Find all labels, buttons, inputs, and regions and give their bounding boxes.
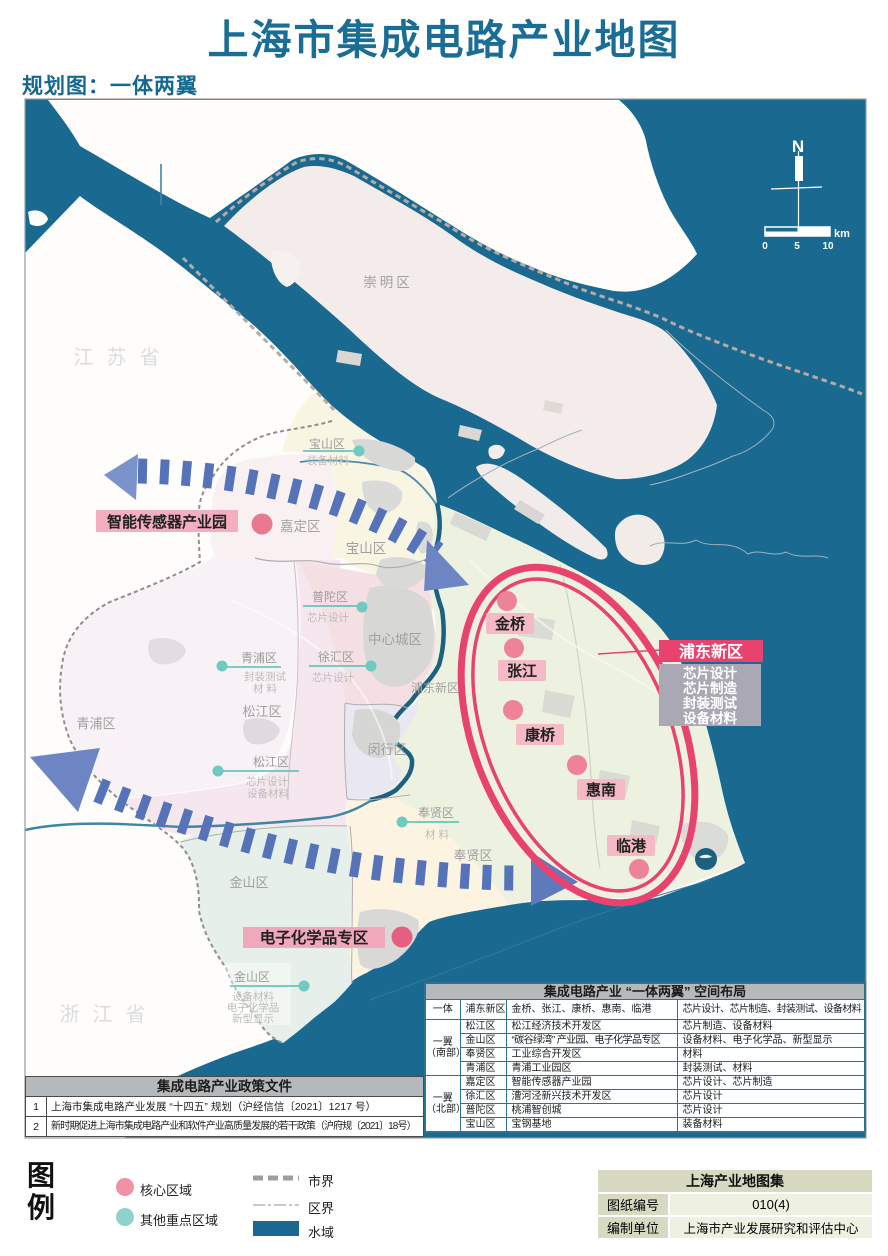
svg-text:奉贤区: 奉贤区 — [418, 806, 454, 820]
svg-text:青浦区: 青浦区 — [76, 716, 115, 731]
svg-text:材 料: 材 料 — [425, 828, 449, 841]
svg-text:金山区: 金山区 — [234, 969, 270, 984]
svg-text:km: km — [834, 228, 850, 240]
svg-text:金桥: 金桥 — [494, 615, 526, 633]
svg-text:中心城区: 中心城区 — [368, 632, 422, 647]
svg-text:徐汇区: 徐汇区 — [318, 649, 354, 664]
svg-text:嘉定区: 嘉定区 — [280, 519, 321, 534]
svg-text:奉贤区: 奉贤区 — [453, 848, 492, 863]
svg-text:封装测试: 封装测试 — [244, 670, 286, 683]
svg-text:宝山区: 宝山区 — [309, 437, 345, 451]
svg-text:智能传感器产业园: 智能传感器产业园 — [107, 513, 227, 531]
svg-text:松江区: 松江区 — [253, 755, 289, 769]
svg-text:0: 0 — [762, 241, 768, 252]
svg-text:芯片制造: 芯片制造 — [683, 680, 737, 696]
svg-text:康桥: 康桥 — [525, 726, 556, 744]
svg-text:浦东新区: 浦东新区 — [679, 642, 743, 661]
svg-text:闵行区: 闵行区 — [367, 742, 406, 757]
svg-text:材 料: 材 料 — [253, 682, 277, 695]
svg-text:电子化学品专区: 电子化学品专区 — [260, 928, 369, 947]
svg-text:封装测试: 封装测试 — [683, 695, 737, 711]
svg-text:松江区: 松江区 — [242, 704, 281, 719]
svg-text:惠南: 惠南 — [586, 781, 616, 799]
svg-text:宝山区: 宝山区 — [346, 541, 387, 556]
svg-text:江苏省: 江苏省 — [74, 346, 173, 369]
svg-text:浦东新区: 浦东新区 — [411, 680, 459, 695]
svg-text:设备材料: 设备材料 — [247, 787, 289, 800]
svg-text:崇明区: 崇明区 — [363, 275, 413, 290]
svg-text:张江: 张江 — [507, 662, 537, 680]
svg-text:新型显示: 新型显示 — [232, 1012, 274, 1025]
svg-text:芯片设计: 芯片设计 — [307, 611, 349, 624]
svg-text:10: 10 — [822, 241, 834, 252]
svg-text:设备材料: 设备材料 — [683, 710, 737, 726]
svg-text:5: 5 — [794, 241, 800, 252]
svg-text:芯片设计: 芯片设计 — [312, 671, 354, 684]
svg-text:芯片设计: 芯片设计 — [683, 665, 737, 681]
svg-text:装备材料: 装备材料 — [307, 454, 349, 467]
svg-text:普陀区: 普陀区 — [312, 589, 348, 604]
svg-text:青浦区: 青浦区 — [241, 651, 277, 665]
svg-text:芯片设计: 芯片设计 — [246, 775, 288, 788]
svg-text:金山区: 金山区 — [229, 875, 268, 890]
svg-text:浙江省: 浙江省 — [60, 1003, 159, 1026]
svg-text:临港: 临港 — [616, 837, 647, 855]
